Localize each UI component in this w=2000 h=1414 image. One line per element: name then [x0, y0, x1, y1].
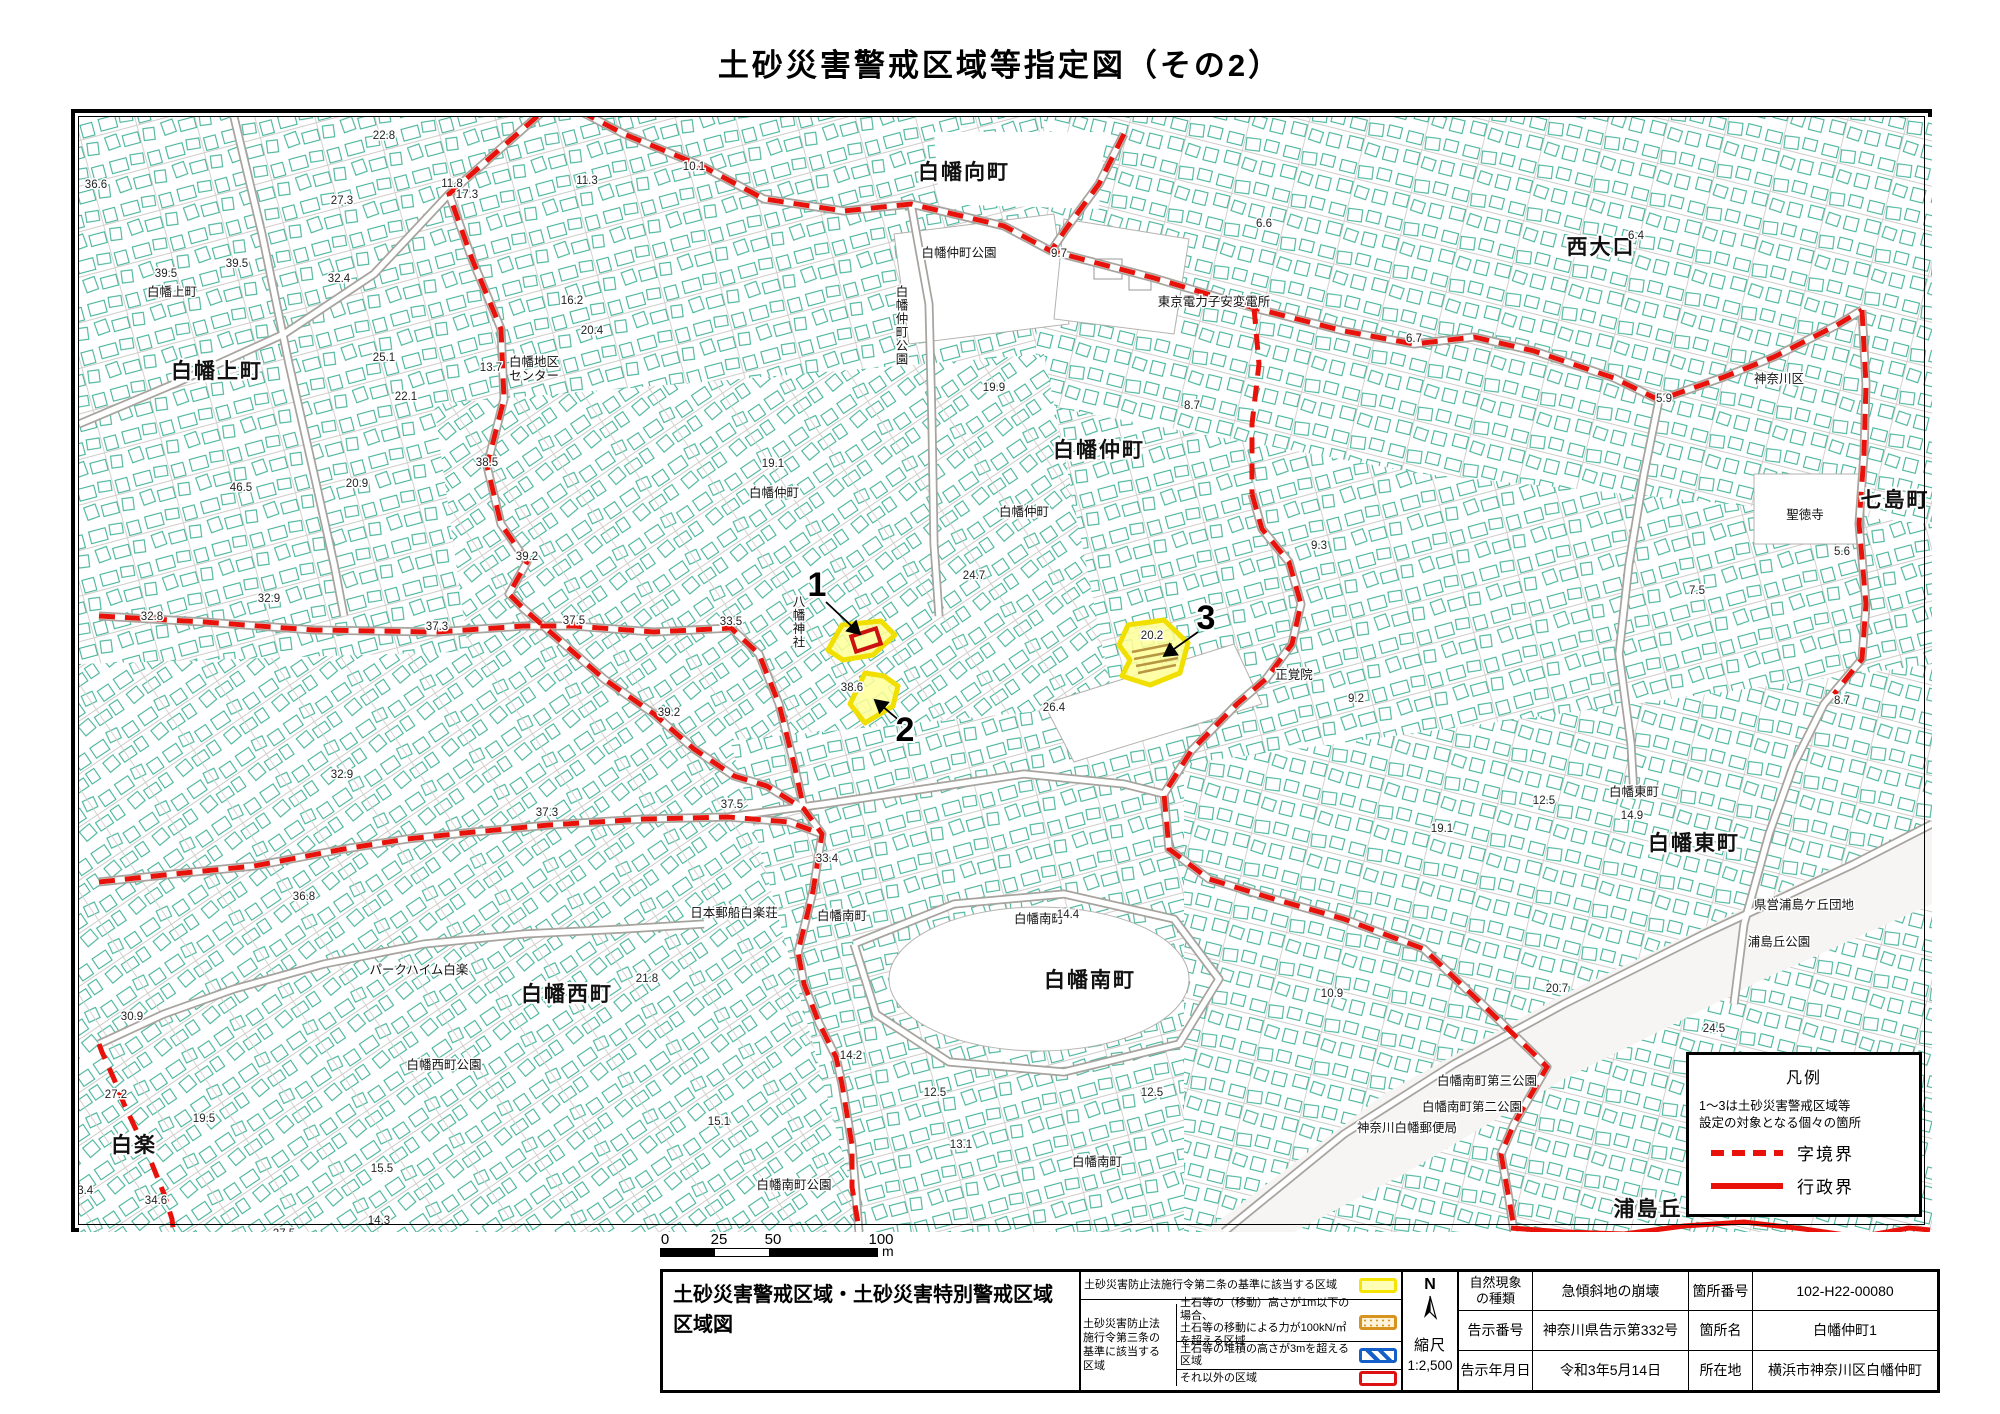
spot-elevation: 36.6 [85, 179, 107, 191]
area-label: 西大口 [1567, 236, 1636, 259]
spot-elevation: 6.6 [1256, 218, 1272, 230]
zone-number-label: 3 [1197, 599, 1216, 637]
info-label: 箇所番号 [1689, 1272, 1753, 1311]
scale-tick: 50 [765, 1231, 782, 1248]
area-label: 白幡仲町 [999, 504, 1049, 519]
yellow-zone-swatch [1359, 1278, 1397, 1293]
legend-row-article3: 土砂災害防止法 施行令第三条の 基準に該当する 区域 土石等の（移動）高さが1m… [1081, 1300, 1401, 1390]
map-frame: 白幡向町白幡上町白幡仲町西大口七島町白幡東町白幡南町白幡西町白楽浦島丘白幡仲町公… [71, 109, 1932, 1232]
spot-elevation: 16.2 [561, 295, 583, 307]
spot-elevation: 8.7 [1184, 400, 1200, 412]
spot-elevation: 6.7 [1406, 333, 1422, 345]
info-label: 箇所名 [1689, 1311, 1753, 1350]
spot-elevation: 9.3 [1311, 540, 1327, 552]
area-label: 白幡仲町公園 [921, 245, 996, 260]
legend-row-aza: 字境界 [1711, 1140, 1919, 1165]
area-label: 白幡上町 [171, 359, 263, 383]
scale-label: 縮尺 [1414, 1334, 1446, 1355]
spot-elevation: 12.5 [1141, 1087, 1163, 1099]
spot-elevation: 19.9 [983, 382, 1005, 394]
north-label: N [1424, 1276, 1436, 1294]
orange-dotted-swatch [1359, 1315, 1397, 1330]
area-label: 白幡地区センター [509, 354, 559, 383]
info-label: 告示年月日 [1459, 1351, 1533, 1390]
spot-elevation: 10.9 [1321, 988, 1343, 1000]
area-label: 白幡仲町公園 [896, 284, 909, 367]
spot-elevation: 32.9 [258, 593, 280, 605]
spot-elevation: 15.5 [371, 1163, 393, 1175]
legend-subrow-movement: 土石等の（移動）高さが1m以下の場合、 土石等の移動による力が100kN/㎡を超… [1177, 1304, 1401, 1342]
spot-elevation: 21.8 [636, 973, 658, 985]
area-label: 浦島丘公園 [1748, 934, 1811, 949]
spot-elevation: 34.6 [145, 1195, 167, 1207]
area-label: 白幡東町 [1609, 784, 1659, 799]
legend-subrow-deposit: 土石等の堆積の高さが3mを超える区域 [1177, 1342, 1401, 1370]
spot-elevation: 27.3 [331, 195, 353, 207]
spot-elevation: 32.4 [328, 273, 351, 285]
legend-title: 凡例 [1689, 1064, 1919, 1088]
zone-number-label: 1 [808, 566, 827, 604]
spot-elevation: 14.9 [1621, 810, 1643, 822]
hazard-map-page: 土砂災害警戒区域等指定図（その2） [0, 0, 2000, 1414]
red-outline-swatch [1359, 1371, 1397, 1386]
solid-line-label: 行政界 [1797, 1173, 1854, 1198]
spot-elevation: 39.5 [226, 258, 248, 270]
spot-elevation: 17.3 [456, 189, 478, 201]
info-label: 告示番号 [1459, 1311, 1533, 1350]
scale-tick: 0 [661, 1231, 669, 1248]
spot-elevation: 20.2 [1141, 630, 1163, 642]
spot-elevation: 37.5 [721, 799, 743, 811]
spot-elevation: 39.2 [516, 551, 538, 563]
spot-elevation: 8.7 [1834, 695, 1850, 707]
info-value: 令和3年5月14日 [1533, 1351, 1689, 1390]
deposit-zone-label: 土石等の堆積の高さが3mを超える区域 [1177, 1341, 1355, 1370]
spot-elevation: 20.7 [1546, 983, 1568, 995]
spot-elevation: 32.8 [141, 611, 163, 623]
spot-elevation: 11.8 [441, 178, 463, 190]
blue-hatch-swatch [1359, 1348, 1397, 1363]
spot-elevation: 10.1 [683, 161, 705, 173]
spot-elevation: 26.4 [1043, 702, 1066, 714]
spot-elevation: 32.9 [331, 769, 353, 781]
spot-elevation: 37.3 [426, 621, 448, 633]
area-label: 白幡南町 [1044, 968, 1136, 992]
spot-elevation: 15.1 [708, 1116, 730, 1128]
spot-elevation: 27.2 [105, 1089, 127, 1101]
area-label: 東京電力子安変電所 [1158, 294, 1271, 309]
info-label: 所在地 [1689, 1351, 1753, 1390]
page-title: 土砂災害警戒区域等指定図（その2） [0, 40, 2000, 85]
spot-elevation: 37.5 [563, 615, 585, 627]
spot-elevation: 14.4 [1057, 909, 1080, 921]
area-label: 白幡南町 [1072, 1154, 1122, 1169]
spot-elevation: 46.5 [230, 482, 252, 494]
area-label: パークハイム白楽 [370, 962, 469, 977]
spot-elevation: 12.5 [924, 1087, 946, 1099]
legend-note: 1〜3は土砂災害警戒区域等 設定の対象となる個々の箇所 [1699, 1098, 1911, 1132]
area-label: 白楽 [111, 1133, 157, 1157]
area-label: 八幡神社 [793, 595, 806, 650]
dashed-line-label: 字境界 [1797, 1140, 1854, 1165]
north-and-scale-cell: N 縮尺 1:2,500 [1403, 1272, 1459, 1390]
area-label: 白幡南町公園 [756, 1177, 831, 1192]
spot-elevation: 33.4 [816, 853, 839, 865]
map-legend-box: 凡例 1〜3は土砂災害警戒区域等 設定の対象となる個々の箇所 字境界 行政界 [1686, 1052, 1922, 1217]
spot-elevation: 33.5 [720, 616, 742, 628]
spot-elevation: 11.3 [576, 175, 598, 187]
zone-type-legend: 土砂災害防止法施行令第二条の基準に該当する区域 土砂災害防止法 施行令第三条の … [1081, 1272, 1403, 1390]
area-label: 聖徳寺 [1786, 507, 1824, 522]
spot-elevation: 12.5 [1533, 795, 1555, 807]
area-label: 白幡南町第二公園 [1422, 1099, 1522, 1114]
spot-elevation: 38.5 [476, 457, 498, 469]
info-value: 白幡仲町1 [1753, 1311, 1937, 1350]
solid-line-sample [1711, 1183, 1783, 1189]
notice-info-table: 自然現象 の種類急傾斜地の崩壊箇所番号102-H22-00080告示番号神奈川県… [1459, 1272, 1937, 1390]
spot-elevation: 5.9 [1656, 393, 1672, 405]
area-label: 神奈川白幡郵便局 [1357, 1120, 1457, 1135]
area-label: 白幡西町公園 [406, 1057, 481, 1072]
spot-elevation: 13.7 [480, 362, 502, 374]
spot-elevation: 9.2 [1348, 693, 1364, 705]
spot-elevation: 25.1 [373, 352, 395, 364]
other-zone-label: それ以外の区域 [1177, 1370, 1355, 1387]
city-map: 白幡向町白幡上町白幡仲町西大口七島町白幡東町白幡南町白幡西町白楽浦島丘白幡仲町公… [79, 117, 1932, 1232]
area-label: 白幡南町 [817, 908, 867, 923]
spot-elevation: 6.4 [1628, 230, 1645, 242]
spot-elevation: 20.4 [581, 325, 604, 337]
scale-tick: 25 [711, 1231, 728, 1248]
spot-elevation: 19.1 [762, 458, 784, 470]
spot-elevation: 38.6 [841, 682, 863, 694]
spot-elevation: 37.3 [536, 807, 558, 819]
info-label: 自然現象 の種類 [1459, 1272, 1533, 1311]
spot-elevation: 22.1 [395, 391, 417, 403]
spot-elevation: 19.5 [193, 1113, 215, 1125]
area-label: 白幡仲町 [749, 485, 799, 500]
spot-elevation: 39.5 [155, 268, 177, 280]
dashed-line-sample [1711, 1150, 1783, 1156]
area-label: 白幡仲町 [1053, 438, 1145, 462]
area-label: 白幡上町 [147, 284, 197, 299]
scale-bar: 0 25 50 100 m [660, 1231, 940, 1265]
area-label: 白幡東町 [1648, 831, 1740, 855]
area-label: 正覚院 [1275, 668, 1313, 682]
spot-elevation: 27.5 [273, 1228, 295, 1232]
spot-elevation: 13.1 [950, 1139, 972, 1151]
spot-elevation: 5.6 [1834, 546, 1850, 558]
spot-elevation: 14.3 [368, 1215, 390, 1227]
spot-elevation: 19.1 [1431, 823, 1453, 835]
spot-elevation: 39.2 [658, 707, 680, 719]
north-arrow-icon [1420, 1294, 1440, 1320]
spot-elevation: 30.9 [121, 1011, 143, 1023]
area-label: 日本郵船白楽荘 [690, 905, 778, 920]
spot-elevation: 20.9 [346, 478, 368, 490]
area-label: 浦島丘 [1614, 1197, 1683, 1221]
spot-elevation: 7.5 [1689, 585, 1705, 597]
scale-ticks: 0 25 50 100 [660, 1231, 940, 1247]
article2-label: 土砂災害防止法施行令第二条の基準に該当する区域 [1081, 1277, 1355, 1294]
scale-value: 1:2,500 [1407, 1358, 1452, 1373]
legend-subrow-other: それ以外の区域 [1177, 1370, 1401, 1387]
spot-elevation: 22.8 [373, 130, 395, 142]
title-block: 土砂災害警戒区域・土砂災害特別警戒区域 区域図 土砂災害防止法施行令第二条の基準… [660, 1269, 1940, 1393]
spot-elevation: 24.7 [963, 570, 985, 582]
info-value: 神奈川県告示第332号 [1533, 1311, 1689, 1350]
spot-elevation: 9.7 [1051, 248, 1067, 260]
area-label: 白幡南町第三公園 [1437, 1073, 1537, 1088]
area-label: 県営浦島ケ丘団地 [1754, 897, 1855, 912]
area-label: 神奈川区 [1754, 372, 1804, 386]
spot-elevation: 33.4 [79, 1185, 94, 1197]
info-value: 102-H22-00080 [1753, 1272, 1937, 1311]
info-value: 横浜市神奈川区白幡仲町 [1753, 1351, 1937, 1390]
legend-row-admin: 行政界 [1711, 1173, 1919, 1198]
scale-bar-graphic [660, 1248, 878, 1257]
spot-elevation: 14.2 [840, 1050, 862, 1062]
zone-number-label: 2 [896, 711, 915, 749]
document-title-cell: 土砂災害警戒区域・土砂災害特別警戒区域 区域図 [663, 1272, 1081, 1390]
scale-unit: m [882, 1243, 894, 1259]
spot-elevation: 24.5 [1703, 1023, 1725, 1035]
spot-elevation: 36.8 [293, 891, 315, 903]
area-label: 白幡向町 [918, 160, 1010, 184]
area-label: 白幡西町 [521, 982, 613, 1006]
info-value: 急傾斜地の崩壊 [1533, 1272, 1689, 1311]
article3-group-label: 土砂災害防止法 施行令第三条の 基準に該当する 区域 [1081, 1304, 1177, 1387]
area-label: 七島町 [1861, 488, 1930, 512]
